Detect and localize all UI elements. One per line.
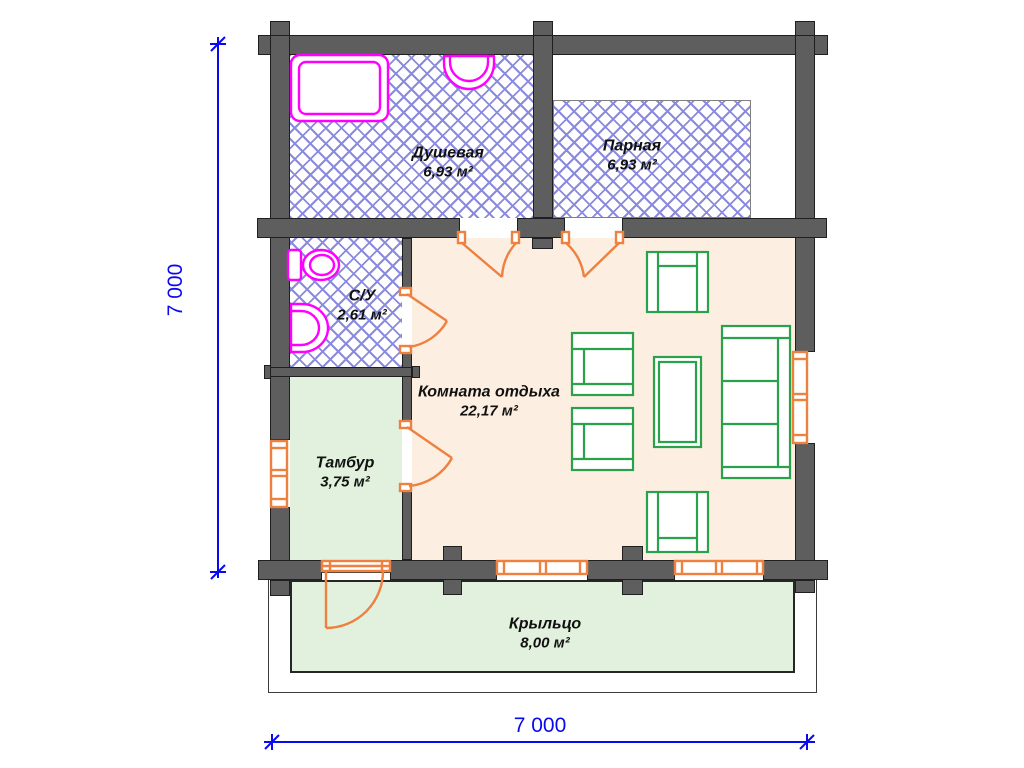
wall-log-end: [443, 546, 462, 561]
room-name: Тамбур: [316, 454, 375, 474]
room-area-value: 3,75 м²: [316, 474, 375, 493]
wall-segment: [587, 560, 675, 580]
room-area-value: 6,93 м²: [603, 157, 661, 176]
room-label-steam-room: Парная 6,93 м²: [603, 137, 661, 176]
room-label-tambur: Тамбур 3,75 м²: [316, 454, 375, 493]
wall-segment: [622, 218, 827, 238]
wall-log-end: [533, 21, 553, 36]
wall-log-end: [622, 579, 643, 595]
room-area-value: 6,93 м²: [412, 164, 484, 183]
room-area-value: 22,17 м²: [418, 403, 560, 422]
wall-segment: [390, 560, 497, 580]
wall-segment: [795, 35, 815, 352]
room-label-wc: С/У 2,61 м²: [337, 287, 386, 326]
wall-log-end: [443, 579, 462, 595]
room-label-porch: Крыльцо 8,00 м²: [509, 615, 581, 654]
wall-segment: [402, 489, 412, 560]
wall-segment: [402, 238, 412, 292]
room-name: Крыльцо: [509, 615, 581, 635]
wall-segment: [257, 218, 460, 238]
wall-log-end: [795, 21, 815, 36]
wall-log-end: [264, 365, 271, 379]
floor-plan: Душевая 6,93 м² Парная 6,93 м² С/У 2,61 …: [0, 0, 1024, 768]
wall-log-end: [795, 580, 815, 593]
wall-segment: [517, 218, 565, 238]
room-name: Душевая: [412, 144, 484, 164]
room-label-rest-room: Комната отдыха 22,17 м²: [418, 383, 560, 422]
room-area-shower: [290, 55, 533, 218]
window-tambur-left: [271, 441, 287, 507]
room-name: Парная: [603, 137, 661, 157]
room-area-value: 8,00 м²: [509, 635, 581, 654]
wall-log-end: [532, 238, 553, 249]
wall-segment: [258, 560, 322, 580]
wall-log-end: [622, 546, 643, 561]
wall-log-end: [412, 366, 420, 378]
wall-log-end: [270, 580, 290, 596]
wall-log-end: [270, 21, 290, 36]
room-name: С/У: [337, 287, 386, 307]
wall-segment: [270, 367, 412, 377]
dimension-height-label: 7 000: [164, 264, 188, 317]
wall-segment: [402, 348, 412, 423]
room-label-shower: Душевая 6,93 м²: [412, 144, 484, 183]
room-name: Комната отдыха: [418, 383, 560, 403]
room-area-value: 2,61 м²: [337, 307, 386, 326]
wall-segment: [533, 35, 553, 218]
window-rest-right: [793, 352, 807, 443]
dimension-vertical: [210, 37, 226, 579]
dimension-width-label: 7 000: [514, 714, 567, 738]
wall-segment: [763, 560, 828, 580]
